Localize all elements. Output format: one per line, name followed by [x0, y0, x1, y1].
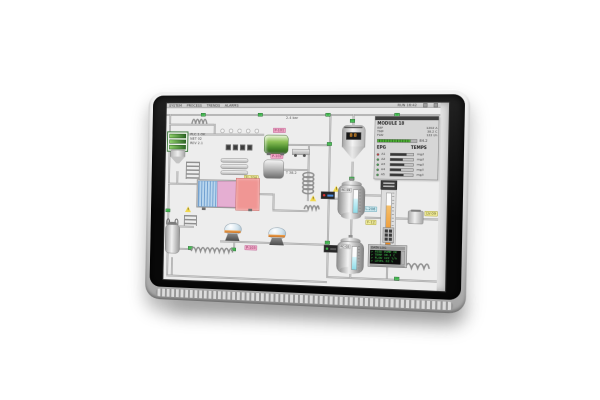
pipe-tag: 2.4 bar [286, 116, 298, 120]
pipe-bottom-bus-right [326, 276, 437, 283]
valve-indicator [166, 209, 171, 212]
reactor-tank-2: RC-02 [336, 237, 364, 277]
lcd-scrollbar[interactable] [401, 251, 405, 265]
reactor2-level-fill [352, 257, 357, 270]
separator-pump-2 [265, 227, 289, 248]
blue-readout [327, 195, 333, 197]
reactor-tag: RC-02 [339, 244, 350, 249]
panel-progress-value: 84.2 [419, 139, 427, 143]
gauge-header [381, 180, 398, 189]
vent-ports [220, 129, 259, 134]
panel-col-header-temps: TEMPS [411, 145, 427, 150]
green-mill-tank [264, 135, 289, 154]
serpentine-pipe-right [405, 259, 430, 270]
red-led [323, 194, 326, 197]
valve-indicator [350, 119, 355, 123]
reactor-tag: RC-01 [340, 188, 351, 193]
menubar-status: RUN 16:42 [397, 103, 417, 107]
junction-box [383, 227, 395, 243]
legend-text: PLC 1 OK NET 02 REV 2.1 [190, 132, 214, 145]
tank-foot [280, 153, 284, 156]
hopper-cone [342, 146, 366, 158]
spiral-coil [301, 172, 315, 194]
menu-item[interactable]: ALARMS [225, 103, 239, 107]
lcd-log-display: DATA LOG > FEED PUMP OK > TEMP 38.2 C > … [368, 244, 408, 268]
coil-heat-exchanger [191, 115, 207, 124]
menu-item[interactable]: TRENDS [207, 103, 221, 107]
epg-status-panel: MODULE 18 REF1202 A TMP38.2 C FLW122 l/h… [374, 116, 440, 180]
status-box-reactor1 [321, 191, 335, 199]
device-screen: SYSTEM PROCESS TRENDS ALARMS RUN 16:42 [163, 103, 449, 292]
window-close-button[interactable] [434, 103, 438, 107]
flow-tag: LV-09 [425, 211, 438, 216]
bath-section-red [235, 178, 260, 211]
menu-item[interactable]: SYSTEM [169, 104, 182, 108]
pipe [272, 209, 307, 212]
coil-stack [186, 162, 200, 180]
pipe [171, 257, 173, 274]
serpentine-pipe [191, 243, 234, 253]
indicator-squares [226, 144, 253, 151]
panel-col-header-epg: EPG [377, 145, 386, 150]
reactor-tank-1: RC-01 [337, 181, 365, 221]
scada-diagram: SYSTEM PROCESS TRENDS ALARMS RUN 16:42 [163, 103, 440, 291]
pipe [176, 171, 178, 184]
menubar: SYSTEM PROCESS TRENDS ALARMS RUN 16:42 [167, 103, 441, 109]
pipe [169, 124, 216, 126]
panel-progress-bar [377, 139, 417, 143]
panel-header-bar [375, 117, 438, 121]
separator-pump-1 [221, 223, 244, 243]
valve-indicator [325, 113, 330, 117]
green-led [326, 247, 329, 250]
pipe-tag: T 38.2 [286, 171, 297, 175]
valve-indicator [394, 277, 399, 281]
plate-heat-exchanger [220, 158, 248, 175]
panel-title: MODULE 18 [377, 121, 404, 126]
menu-item[interactable]: PROCESS [187, 103, 202, 107]
funnel-vessel [170, 150, 185, 157]
lcd-button-strip[interactable] [370, 264, 405, 267]
hopper-lid [344, 127, 362, 129]
equipment-tag: P-101 [273, 128, 286, 133]
reactor1-level-fill [353, 199, 358, 213]
funnel-cone [170, 157, 185, 164]
panel-info-row: FLW122 l/h [377, 133, 437, 137]
tank-foot [267, 153, 271, 156]
pipe [422, 218, 438, 220]
tank-foot [202, 208, 206, 211]
small-serpentine [304, 202, 320, 210]
valve-indicator [258, 113, 263, 116]
panel-pc-device: SYSTEM PROCESS TRENDS ALARMS RUN 16:42 [145, 89, 471, 314]
tank-foot [248, 209, 252, 212]
small-holding-tank [408, 211, 424, 225]
coil-stack [184, 215, 197, 226]
product-photo-stage: SYSTEM PROCESS TRENDS ALARMS RUN 16:42 [0, 0, 600, 400]
lcd-screen: > FEED PUMP OK > TEMP 38.2 C > FLOW 122 … [370, 250, 401, 265]
flow-tag: F-12 [366, 220, 377, 225]
pipe [168, 183, 198, 185]
panel-row: A5mg/l [376, 173, 436, 179]
window-button[interactable] [423, 103, 427, 107]
equipment-tag: P-103 [245, 245, 258, 250]
device-silver-frame: SYSTEM PROCESS TRENDS ALARMS RUN 16:42 [145, 89, 471, 314]
gray-drum-tank [263, 160, 284, 179]
panel-progress-fill [377, 139, 410, 142]
legend-line: REV 2.1 [190, 141, 213, 146]
legend-box [167, 131, 189, 152]
dark-readout [330, 248, 336, 250]
device-black-bezel: SYSTEM PROCESS TRENDS ALARMS RUN 16:42 [149, 94, 465, 300]
bath-section-pink [217, 181, 236, 207]
bath-section-coolant [198, 181, 218, 207]
valve-indicator [327, 142, 332, 146]
warning-icon: ! [310, 195, 317, 201]
hopper-value-display: 88 [346, 132, 361, 140]
pump-cart [292, 149, 309, 157]
status-box-reactor2 [324, 245, 338, 253]
cylinder-vessel [165, 224, 180, 253]
warning-icon: ! [185, 206, 191, 212]
pipe-bottom-bus-left [166, 274, 327, 283]
